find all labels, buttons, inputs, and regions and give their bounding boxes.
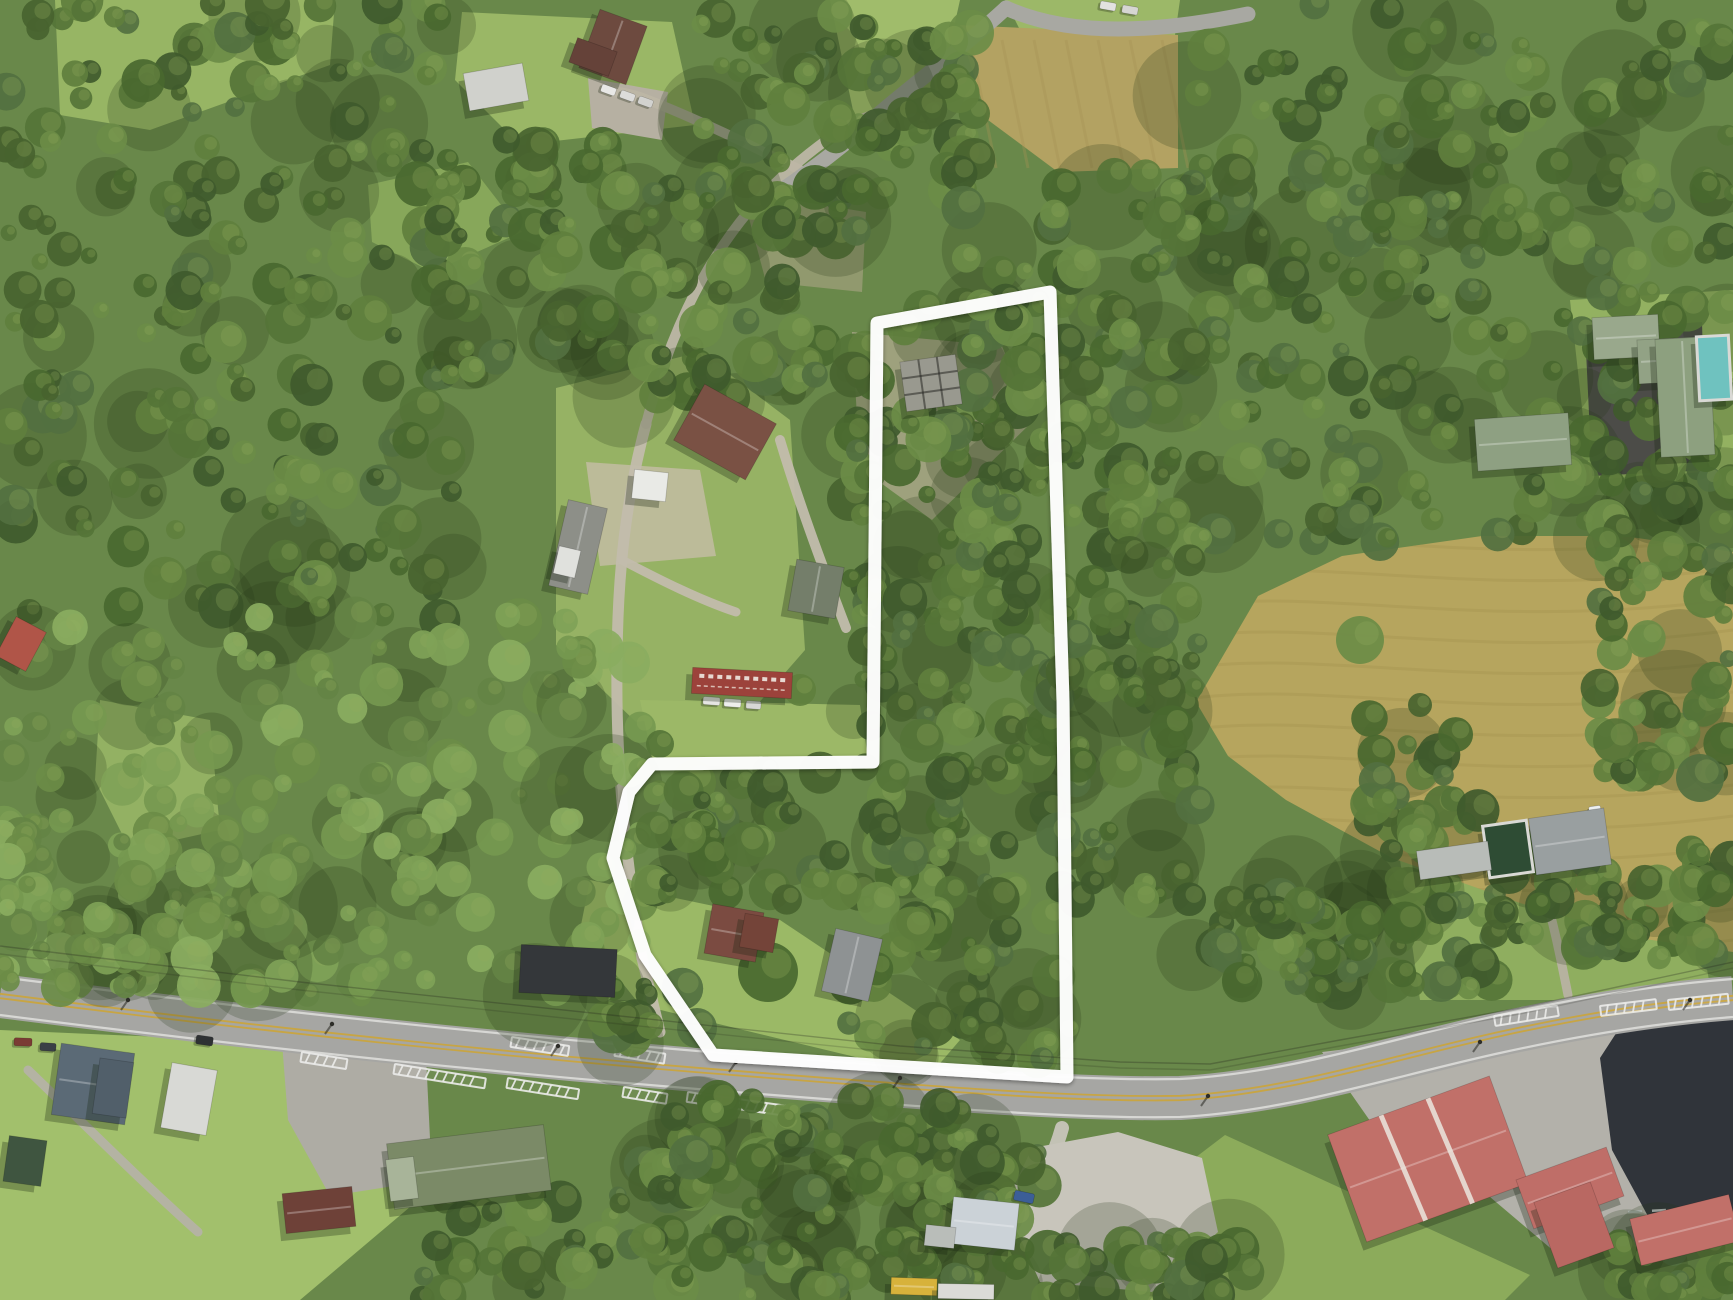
building-east-green-building [1468, 413, 1572, 479]
building-school-bus [884, 1277, 937, 1300]
utility-pole [898, 1076, 902, 1080]
building-road-house-maroon-wing [732, 912, 779, 959]
vehicle [12, 1038, 32, 1049]
building-east-house [1522, 808, 1612, 883]
building-sc-trailer [932, 1283, 994, 1300]
utility-pole [1688, 998, 1692, 1002]
utility-pole [1206, 1094, 1210, 1098]
utility-pole [330, 1022, 334, 1026]
building-black-building [512, 944, 617, 1004]
building-sw-green-shed [0, 1135, 47, 1194]
building-center-barn [781, 558, 844, 625]
building-ruined-structure [894, 354, 963, 419]
utility-pole [126, 998, 130, 1002]
utility-pole [556, 1044, 560, 1048]
building-sw-maroon-barn [276, 1186, 356, 1241]
vehicle [38, 1042, 57, 1053]
aerial-photo [0, 0, 1733, 1300]
utility-pole [1478, 1040, 1482, 1044]
building-red-lettered-trailer [685, 667, 793, 706]
aerial-photo-canvas [0, 0, 1733, 1300]
building-ne-pool [1690, 335, 1732, 408]
